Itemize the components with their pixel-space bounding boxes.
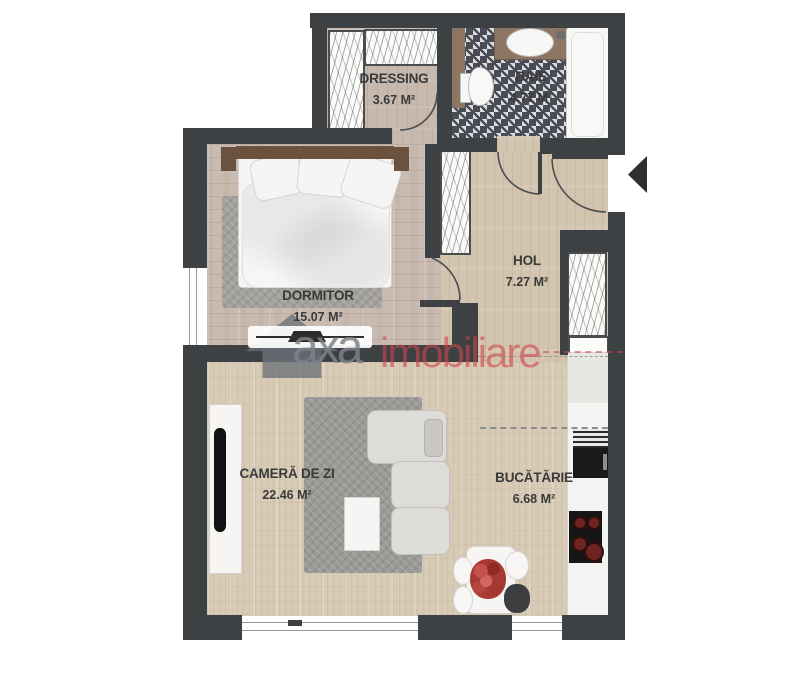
wall-segment — [608, 212, 625, 640]
bed-headboard — [236, 146, 394, 159]
kitchen-counter-sink-zone — [568, 353, 608, 403]
room-label-bucatarie: BUCĂTĂRIE 6.68 M² — [495, 467, 573, 509]
bathtub-inner-rim — [571, 32, 604, 137]
window-frame-line — [189, 268, 190, 345]
wall-segment — [183, 345, 207, 615]
upper-cabinet-dashed-outline — [480, 427, 608, 429]
door-leaf — [552, 152, 608, 159]
room-area: 22.46 M² — [239, 485, 334, 505]
door-leaf — [420, 300, 460, 307]
soap-tray — [556, 31, 565, 39]
floor-plan-canvas: axa imobiliare DRESSING 3.67 M² BAIE 4.7… — [0, 0, 800, 676]
window — [183, 268, 204, 345]
sofa-seat — [391, 507, 450, 555]
room-name: HOL — [506, 250, 548, 272]
wall-segment — [183, 128, 392, 144]
watermark-brand-red: imobiliare — [380, 332, 540, 374]
room-label-hol: HOL 7.27 M² — [506, 250, 548, 292]
wall-segment — [183, 128, 207, 268]
wardrobe — [567, 252, 607, 337]
cooktop-burner — [584, 542, 604, 562]
door-leaf — [437, 93, 442, 130]
room-name: DORMITOR — [282, 285, 354, 307]
dining-chair — [505, 551, 529, 580]
oven-handle — [603, 454, 607, 470]
wall-segment — [560, 230, 608, 252]
cooktop-burner — [573, 516, 587, 530]
room-area: 4.77 M² — [510, 88, 552, 108]
wall-segment — [562, 615, 625, 640]
window-frame-line — [196, 268, 197, 345]
window-frame-line — [242, 622, 418, 623]
flower-bouquet — [470, 559, 506, 599]
watermark-brand-gray: axa — [292, 324, 360, 372]
oven-vent — [573, 429, 608, 448]
room-name: BAIE — [510, 66, 552, 88]
dining-chair-dark — [504, 584, 530, 613]
wall-segment — [418, 615, 512, 640]
coffee-table — [344, 497, 380, 551]
window-frame-line — [242, 630, 418, 631]
sink — [506, 28, 554, 57]
floor-door-threshold-dressing — [392, 128, 437, 144]
wall-segment — [312, 13, 327, 144]
wardrobe — [440, 148, 471, 255]
room-area: 15.07 M² — [282, 307, 354, 327]
wardrobe — [364, 29, 445, 66]
window-handle — [288, 620, 302, 626]
dining-chair — [453, 586, 473, 614]
room-label-dressing: DRESSING 3.67 M² — [360, 68, 429, 110]
window — [512, 616, 562, 640]
room-name: BUCĂTĂRIE — [495, 467, 573, 489]
wall-segment — [437, 13, 452, 152]
wall-segment — [452, 138, 497, 152]
sofa-back-cushion — [424, 419, 443, 457]
room-name: CAMERĂ DE ZI — [239, 463, 334, 485]
room-area: 7.27 M² — [506, 272, 548, 292]
door-leaf — [538, 152, 542, 194]
window-frame-line — [512, 622, 562, 623]
window-frame-line — [512, 630, 562, 631]
room-label-dormitor: DORMITOR 15.07 M² — [282, 285, 354, 327]
room-label-baie: BAIE 4.77 M² — [510, 66, 552, 108]
wall-segment — [560, 252, 568, 355]
wall-segment — [310, 13, 625, 28]
nightstand — [394, 147, 409, 171]
wall-segment — [608, 13, 625, 155]
wall-segment — [183, 615, 242, 640]
room-area: 3.67 M² — [360, 90, 429, 110]
window — [242, 616, 418, 640]
nightstand — [221, 147, 236, 171]
tv — [214, 428, 226, 532]
wall-segment — [425, 144, 440, 258]
cooktop-burner — [587, 516, 601, 530]
room-name: DRESSING — [360, 68, 429, 90]
entrance-arrow-icon — [628, 156, 647, 193]
floor-door-threshold-bathroom — [497, 136, 540, 152]
room-label-camera-de-zi: CAMERĂ DE ZI 22.46 M² — [239, 463, 334, 505]
sofa-seat — [391, 461, 450, 509]
room-area: 6.68 M² — [495, 489, 573, 509]
watermark-dashed-line — [543, 351, 623, 353]
